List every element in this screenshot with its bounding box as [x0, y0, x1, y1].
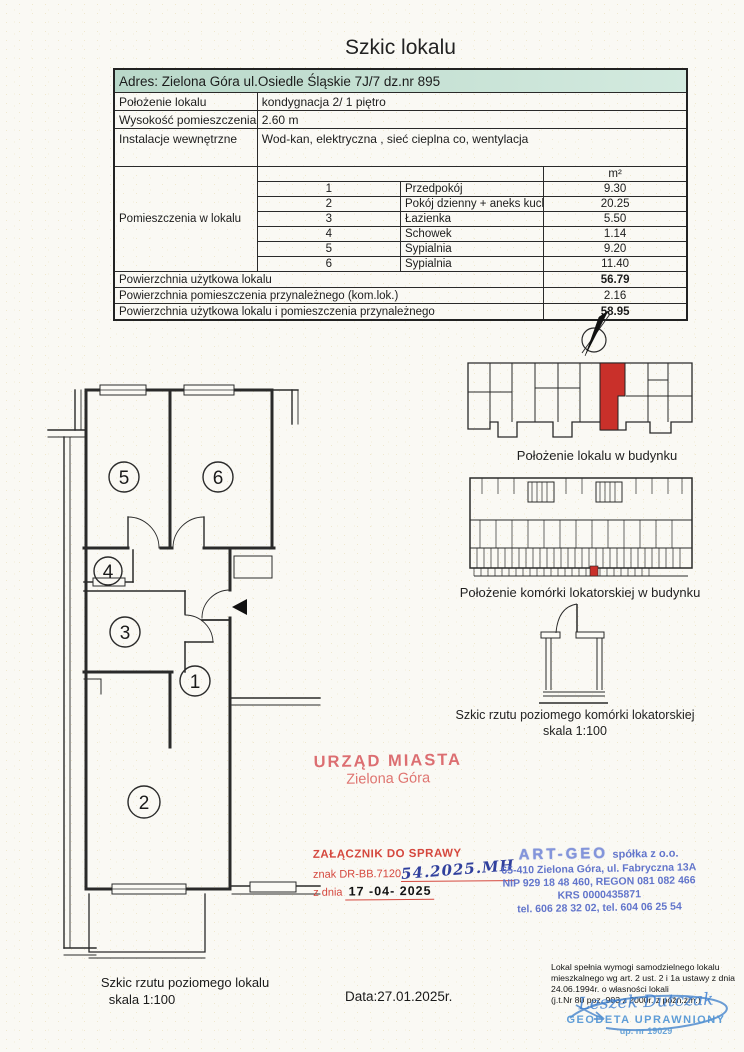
- compass-icon: [582, 311, 610, 356]
- surveyor-name: Leszek Dutczak: [548, 989, 744, 1016]
- room-name: Pokój dzienny + aneks kuchenny: [401, 197, 544, 212]
- storage-room-sketch: [528, 598, 620, 712]
- row-value: Wod-kan, elektryczna , sieć cieplna co, …: [257, 129, 687, 167]
- city-hall-stamp: URZĄD MIASTA Zielona Góra: [298, 750, 479, 788]
- surveyor-license: up. nr 19029: [548, 1026, 744, 1036]
- entrance-arrow-icon: [232, 599, 247, 615]
- room-number: 2: [139, 793, 150, 814]
- room-area: 1.14: [544, 227, 687, 242]
- surveyor-stamp: Leszek Dutczak GEODETA UPRAWNIONY up. nr…: [548, 992, 744, 1036]
- building-diagram-caption: Położenie lokalu w budynku: [462, 448, 732, 463]
- room-no: 1: [257, 182, 400, 197]
- apartment-info-table: Adres: Zielona Góra ul.Osiedle Śląskie 7…: [113, 68, 688, 321]
- room-number: 1: [190, 672, 201, 693]
- unit-header: m²: [544, 167, 687, 182]
- case-attachment-stamp: ZAŁĄCZNIK DO SPRAWY znak DR-BB.712054.20…: [313, 847, 503, 899]
- room-name: Przedpokój: [401, 182, 544, 197]
- room-number-labels: 5 6 4 3 1 2: [94, 462, 233, 818]
- room-name: Łazienka: [401, 212, 544, 227]
- address-row: Adres: Zielona Góra ul.Osiedle Śląskie 7…: [114, 69, 687, 93]
- legal-note-line: mieszkalnego wg art. 2 ust. 2 i 1a ustaw…: [551, 973, 741, 984]
- artgeo-name-suffix: spółka z o.o.: [612, 848, 678, 861]
- summary-label: Powierzchnia użytkowa lokalu: [114, 272, 544, 288]
- city-stamp-line2: Zielona Góra: [298, 769, 478, 788]
- room-no: 4: [257, 227, 400, 242]
- attachment-ref-prefix: znak DR-BB.7120: [313, 868, 401, 881]
- row-label: Położenie lokalu: [114, 93, 257, 111]
- room-area: 20.25: [544, 197, 687, 212]
- row-value: kondygnacja 2/ 1 piętro: [257, 93, 687, 111]
- upper-floor-detail: [470, 478, 692, 548]
- attachment-date-stamp: 17 -04- 2025: [349, 884, 432, 899]
- room-number: 4: [103, 562, 114, 583]
- storage-walls: [539, 632, 608, 703]
- room-no: 2: [257, 197, 400, 212]
- room-number: 6: [213, 468, 224, 489]
- room-no: 5: [257, 242, 400, 257]
- storage-location-diagram: [458, 470, 702, 585]
- artgeo-company-stamp: ART-GEO spółka z o.o. 65-410 Zielona Gór…: [478, 843, 719, 917]
- artgeo-name: ART-GEO: [518, 845, 608, 864]
- attachment-date-prefix: z dnia: [313, 887, 342, 899]
- row-label: Wysokość pomieszczenia: [114, 111, 257, 129]
- surveyor-title: GEODETA UPRAWNIONY: [548, 1014, 744, 1026]
- room-area: 11.40: [544, 257, 687, 272]
- balcony-outline: [89, 894, 205, 958]
- building-outline: [468, 363, 692, 437]
- legal-note-line: Lokal spełnia wymogi samodzielnego lokal…: [551, 962, 741, 973]
- room-name: Sypialnia: [401, 257, 544, 272]
- floor-plan-caption-line2: skala 1:100: [60, 992, 224, 1007]
- apartment-floor-plan: 5 6 4 3 1 2: [40, 375, 325, 975]
- room-name: Schowek: [401, 227, 544, 242]
- document-date: Data:27.01.2025r.: [345, 989, 452, 1004]
- room-no: 6: [257, 257, 400, 272]
- empty-cell: [257, 167, 544, 182]
- storage-sketch-caption-line1: Szkic rzutu poziomego komórki lokatorski…: [430, 708, 720, 722]
- page-title: Szkic lokalu: [113, 36, 688, 60]
- summary-value: 56.79: [544, 272, 687, 288]
- room-number: 5: [119, 468, 130, 489]
- building-location-diagram: [455, 300, 740, 445]
- scanned-document-page: { "title": "Szkic lokalu", "info_table":…: [0, 0, 744, 1052]
- rooms-group-label: Pomieszczenia w lokalu: [114, 167, 257, 272]
- storage-sketch-caption-line2: skala 1:100: [430, 724, 720, 738]
- door-symbols: [128, 517, 230, 642]
- room-name: Sypialnia: [401, 242, 544, 257]
- floor-plan-caption-line1: Szkic rzutu poziomego lokalu: [60, 975, 310, 990]
- room-area: 9.30: [544, 182, 687, 197]
- room-no: 3: [257, 212, 400, 227]
- artgeo-phones: tel. 606 28 32 02, tel. 604 06 25 54: [479, 900, 719, 917]
- highlighted-storage-cell: [590, 566, 598, 576]
- room-number: 3: [120, 623, 131, 644]
- highlighted-unit: [600, 363, 625, 430]
- row-value: 2.60 m: [257, 111, 687, 129]
- row-label: Instalacje wewnętrzne: [114, 129, 257, 167]
- storage-door-symbol: [556, 604, 577, 633]
- room-area: 9.20: [544, 242, 687, 257]
- room-area: 5.50: [544, 212, 687, 227]
- storage-cells-row: [470, 548, 692, 576]
- floor-plan-caption: Szkic rzutu poziomego lokalu skala 1:100: [60, 975, 310, 1007]
